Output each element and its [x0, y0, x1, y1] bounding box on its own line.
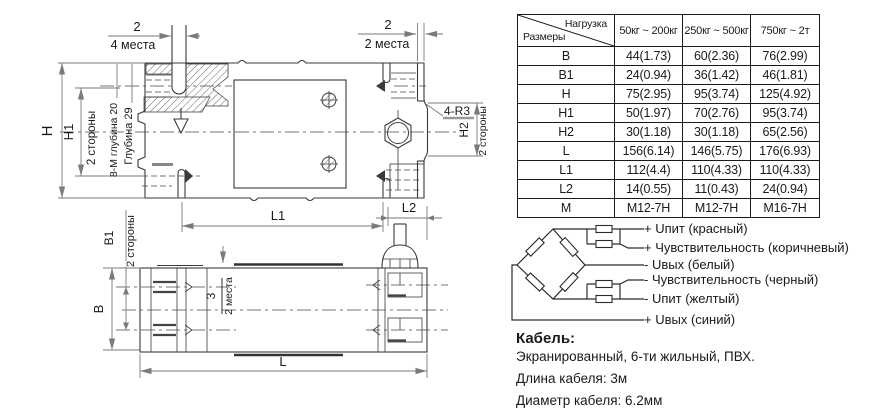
label-h: H	[39, 126, 56, 137]
wire-label-output-minus: - Uвых (белый)	[644, 257, 735, 272]
wire-label-excitation-minus: - Uпит (желтый)	[644, 291, 740, 306]
row-label: L1	[518, 161, 615, 180]
wire-label-sense-minus: - Чувствительность (черный)	[644, 272, 818, 287]
drilled-hole-bottom	[320, 155, 338, 173]
label-two-sides-b1: 2 стороны	[125, 215, 137, 267]
row-label: L2	[518, 180, 615, 199]
label-h1: H1	[61, 124, 76, 141]
wire-label-output-plus: + Uвых (синий)	[644, 312, 735, 327]
technical-drawing: H H1 2 стороны 8-М глубина 20 Глубина 29…	[0, 0, 510, 409]
label-l2: L2	[402, 200, 416, 215]
cell: 75(2.95)	[615, 85, 683, 104]
plan-view	[116, 224, 448, 355]
row-label: B1	[518, 66, 615, 85]
cell: 24(0.94)	[615, 66, 683, 85]
cell: 46(1.81)	[751, 66, 820, 85]
cell: 36(1.42)	[683, 66, 751, 85]
cell: 95(3.74)	[751, 104, 820, 123]
label-h2: H2	[457, 122, 471, 138]
label-l: L	[279, 354, 286, 369]
table-row: L2 14(0.55) 11(0.43) 24(0.94)	[518, 180, 820, 199]
row-label: H	[518, 85, 615, 104]
table-row: L1 112(4.4) 110(4.33) 110(4.33)	[518, 161, 820, 180]
label-two-sides-h2: 2 стороны	[477, 106, 489, 156]
cell: 95(3.74)	[683, 85, 751, 104]
label-depth-note: Глубина 29	[123, 107, 135, 164]
cell: 110(4.33)	[751, 161, 820, 180]
cell: 50(1.97)	[615, 104, 683, 123]
table-row: L 156(6.14) 146(5.75) 176(6.93)	[518, 142, 820, 161]
cable-spec: Экранированный, 6-ти жильный, ПВХ.	[516, 349, 866, 364]
label-dim2-left: 2	[133, 19, 140, 34]
row-label: L	[518, 142, 615, 161]
cable-title: Кабель:	[516, 330, 866, 347]
cell: 70(2.76)	[683, 104, 751, 123]
label-radius-note: 4-R3	[444, 104, 470, 118]
wire-label-excitation-plus: + Uпит (красный)	[644, 221, 748, 236]
cell: 112(4.4)	[615, 161, 683, 180]
cell: 110(4.33)	[683, 161, 751, 180]
table-row: B1 24(0.94) 36(1.42) 46(1.81)	[518, 66, 820, 85]
bridge-resistors	[526, 226, 612, 303]
col-header: 50кг ~ 200кг	[615, 15, 683, 47]
cell: 76(2.99)	[751, 47, 820, 66]
cell: 11(0.43)	[683, 180, 751, 199]
cell: 65(2.56)	[751, 123, 820, 142]
slot-top-right	[376, 63, 426, 101]
col-header: 250кг ~ 500кг	[683, 15, 751, 47]
label-dim3: 3	[204, 292, 218, 299]
table-row: B 44(1.73) 60(2.36) 76(2.99)	[518, 47, 820, 66]
label-places2-right: 2 места	[365, 37, 410, 51]
cell: 30(1.18)	[683, 123, 751, 142]
table-row: M M12-7H M12-7H M16-7H	[518, 199, 820, 218]
drilled-hole-top	[320, 91, 338, 109]
threaded-holes-right	[373, 273, 422, 342]
wire-labels: + Uпит (красный) + Чувствительность (кор…	[644, 221, 849, 327]
label-places4: 4 места	[111, 38, 156, 52]
cable-length: Длина кабеля: 3м	[516, 371, 866, 386]
row-label: H2	[518, 123, 615, 142]
dimensions-table: Нагрузка Размеры 50кг ~ 200кг 250кг ~ 50…	[517, 14, 820, 218]
table-row: H2 30(1.18) 30(1.18) 65(2.56)	[518, 123, 820, 142]
table-row: H 75(2.95) 95(3.74) 125(4.92)	[518, 85, 820, 104]
label-l1: L1	[271, 208, 285, 223]
cell: 146(5.75)	[683, 142, 751, 161]
header-load: Нагрузка	[565, 18, 607, 30]
label-two-sides-left: 2 стороны	[86, 111, 98, 165]
wiring-diagram: + Uпит (красный) + Чувствительность (кор…	[508, 218, 875, 336]
label-b1: B1	[102, 230, 116, 245]
hex-fitting	[385, 110, 411, 190]
cable-gland	[382, 224, 418, 268]
header-size: Размеры	[523, 31, 565, 43]
cell: 44(1.73)	[615, 47, 683, 66]
cell: 24(0.94)	[751, 180, 820, 199]
row-label: B	[518, 47, 615, 66]
cable-diameter: Диаметр кабеля: 6.2мм	[516, 393, 866, 408]
row-label: H1	[518, 104, 615, 123]
cell: M12-7H	[615, 199, 683, 218]
col-header: 750кг ~ 2т	[751, 15, 820, 47]
cell: 30(1.18)	[615, 123, 683, 142]
table-corner-cell: Нагрузка Размеры	[518, 15, 615, 47]
cell: M16-7H	[751, 199, 820, 218]
slot-bottom-left	[142, 165, 200, 199]
cable-info: Кабель: Экранированный, 6-ти жильный, ПВ…	[516, 330, 866, 408]
wire-label-sense-plus: + Чувствительность (коричневый)	[644, 240, 849, 255]
table-row: H1 50(1.97) 70(2.76) 95(3.74)	[518, 104, 820, 123]
load-cell-datasheet: H H1 2 стороны 8-М глубина 20 Глубина 29…	[0, 0, 875, 409]
label-b: B	[91, 305, 106, 314]
slot-bottom-right	[376, 161, 424, 198]
cell: 60(2.36)	[683, 47, 751, 66]
cell: 125(4.92)	[751, 85, 820, 104]
label-places2-bottom: 2 места	[223, 277, 235, 315]
cell: 156(6.14)	[615, 142, 683, 161]
cell: 176(6.93)	[751, 142, 820, 161]
cell: M12-7H	[683, 199, 751, 218]
row-label: M	[518, 199, 615, 218]
cell: 14(0.55)	[615, 180, 683, 199]
label-thread-note: 8-М глубина 20	[108, 103, 120, 177]
label-dim2-right: 2	[384, 17, 391, 32]
mounting-slot-top-left	[172, 25, 186, 94]
